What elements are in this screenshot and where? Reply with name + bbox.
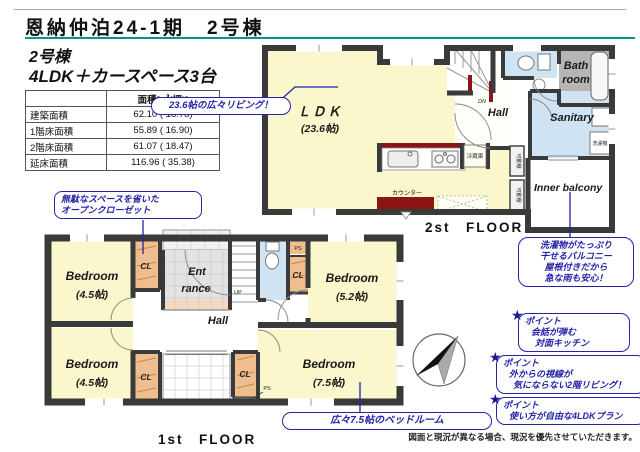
row-label: 2階床面積 <box>26 139 107 155</box>
top-divider <box>14 9 626 10</box>
row-label: 延床面積 <box>26 155 107 171</box>
toilet-bowl-1f <box>266 253 279 269</box>
callout-line: 無駄なスペースを省いた <box>61 194 195 205</box>
vanity <box>592 108 610 126</box>
ps-label: PS <box>263 386 271 392</box>
floor2-label: 2st FLOOR <box>425 216 523 236</box>
compass <box>408 328 472 392</box>
wall-stub <box>377 143 382 172</box>
washer-label: 洗濯機 <box>592 140 607 147</box>
table-row: 延床面積 116.96 ( 35.38) <box>26 155 220 171</box>
bedroom-br-label: Bedroom <box>303 357 356 371</box>
wall-stub <box>486 143 490 169</box>
refrigerator-label: 冷蔵庫 <box>467 152 484 160</box>
bath-label-2: room <box>562 74 590 86</box>
cl-label: CL <box>292 270 303 280</box>
bedroom-tr-size: (5.2帖) <box>336 290 369 303</box>
callout-line: 外からの視線が <box>503 369 639 380</box>
kitchen-sink <box>388 151 418 167</box>
callout-line: 洗濯物がたっぷり <box>525 240 627 251</box>
bath-label-1: Bath <box>564 60 589 72</box>
table-row: 1階床面積 55.89 ( 16.90) <box>26 123 220 139</box>
point-title: ポイント <box>503 400 639 411</box>
ldk-label: ＬＤＫ <box>297 104 342 119</box>
stove <box>432 151 458 167</box>
bedroom-tl-size: (4.5帖) <box>76 288 109 301</box>
row-value: 55.89 ( 16.90) <box>107 123 220 139</box>
inner-balcony <box>528 158 610 230</box>
point-title: ポイント <box>503 358 639 369</box>
bedroom-br-size: (7.5帖) <box>313 376 346 389</box>
bedroom-bl-label: Bedroom <box>66 357 119 371</box>
callout-line: 急な雨も安心！ <box>525 273 627 284</box>
genkan-step <box>165 300 228 310</box>
wall-stub-red <box>468 75 472 93</box>
callout-line: 使い方が自由な4LDKプラン <box>503 411 639 422</box>
ent-label-1: Ent <box>188 266 207 278</box>
ldk-size: (23.6帖) <box>301 122 339 135</box>
floor2-plan: 冷蔵庫 カウンター 可動棚 可動棚 洗濯機 <box>258 44 618 236</box>
hall1-label: Hall <box>208 315 229 327</box>
callout-balcony: 洗濯物がたっぷり 干せるバルコニー 屋根付きだから 急な雨も安心！ <box>518 237 634 287</box>
table-corner-cell <box>26 91 107 107</box>
disclaimer-text: 図面と現況が異なる場合、現況を優先させていただきます。 <box>408 431 637 443</box>
bedroom-tr-label: Bedroom <box>326 271 379 285</box>
callout-line: 対面キッチン <box>525 338 623 349</box>
dn-label: DN <box>478 99 486 105</box>
row-value: 61.07 ( 18.47) <box>107 139 220 155</box>
bathtub <box>591 52 608 100</box>
callout-point-plan: ポイント 使い方が自由な4LDKプラン <box>496 397 640 425</box>
star-icon: ★ <box>511 307 524 324</box>
counter-red <box>377 197 434 211</box>
stairs-up-area <box>230 238 258 310</box>
sanitary-label: Sanitary <box>550 112 594 124</box>
page-title: 恩納仲泊24-1期 2号棟 <box>25 13 265 40</box>
toilet-tank <box>538 54 550 70</box>
up-label: UP <box>234 290 242 296</box>
callout-point-living2f: ポイント 外からの視線が 気にならない2階リビング！ <box>496 355 640 394</box>
counter-label: カウンター <box>392 189 422 197</box>
callout-line: オープンクローゼット <box>61 205 195 216</box>
point-title: ポイント <box>525 316 623 327</box>
row-label: 1階床面積 <box>26 123 107 139</box>
row-label: 建築面積 <box>26 107 107 123</box>
hall2-label: Hall <box>488 107 509 119</box>
title-underline <box>25 37 635 39</box>
shelf-label: 可動棚 <box>515 153 522 168</box>
callout-line: 干せるバルコニー <box>525 251 627 262</box>
layout-summary: 4LDK＋カースペース3台 <box>29 62 216 87</box>
kitchen-counter-wall <box>377 143 465 148</box>
callout-bedroom75-text: 広々7.5帖のベッドルーム <box>330 415 444 426</box>
wall-stub <box>460 143 464 169</box>
terrace <box>163 354 230 405</box>
ent-label-2: rance <box>181 283 210 295</box>
callout-point-kitchen: ポイント 会話が弾む 対面キッチン <box>518 313 630 352</box>
callout-open-closet: 無駄なスペースを省いた オープンクローゼット <box>54 191 202 219</box>
bedroom-tl-label: Bedroom <box>66 269 119 283</box>
callout-line: 気にならない2階リビング！ <box>503 380 639 391</box>
floor1-label: 1st FLOOR <box>158 428 256 448</box>
toilet-bowl <box>518 56 534 70</box>
callout-line: 会話が弾む <box>525 327 623 338</box>
cl-label: CL <box>239 369 250 379</box>
callout-living: 23.6帖の広々リビング！ <box>151 97 291 115</box>
callout-living-text: 23.6帖の広々リビング！ <box>169 100 273 111</box>
star-icon: ★ <box>489 391 502 408</box>
ps-label: PS <box>294 246 302 252</box>
row-value: 116.96 ( 35.38) <box>107 155 220 171</box>
shelf-label: 可動棚 <box>515 187 522 202</box>
table-row: 2階床面積 61.07 ( 18.47) <box>26 139 220 155</box>
toilet-tank-1f <box>266 242 279 251</box>
bedroom-bl-size: (4.5帖) <box>76 376 109 389</box>
cl-label: CL <box>140 261 151 271</box>
callout-bedroom75: 広々7.5帖のベッドルーム <box>282 412 492 430</box>
star-icon: ★ <box>489 349 502 366</box>
inner-balcony-label: Inner balcony <box>534 182 603 194</box>
cl-label: CL <box>140 372 151 382</box>
callout-line: 屋根付きだから <box>525 262 627 273</box>
